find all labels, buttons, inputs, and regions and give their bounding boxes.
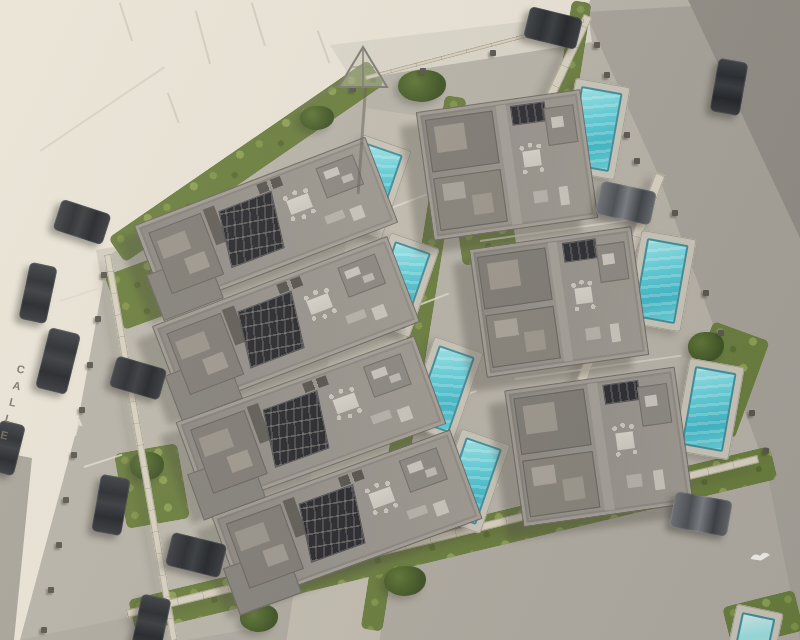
wall-post [718, 330, 724, 336]
rooftop-dining-set [569, 277, 598, 316]
roof-northwest-rooms [477, 247, 552, 310]
solar-panels [237, 291, 304, 368]
roof-southwest-rooms [522, 451, 601, 517]
tree [300, 106, 334, 130]
wall-post [56, 542, 62, 548]
wall-post [79, 407, 85, 413]
rooftop-lounge [581, 316, 627, 352]
wall-post [71, 452, 77, 458]
roof-southwest-rooms [433, 168, 509, 231]
rooftop-dining-set [360, 477, 402, 520]
solar-panels [562, 239, 598, 263]
tree [398, 70, 446, 102]
wall-post [490, 50, 496, 56]
pylon-tower-icon [336, 44, 390, 90]
wall-post [594, 42, 600, 48]
wall-post [634, 158, 640, 164]
wall-post [763, 448, 769, 454]
solar-panels [298, 484, 365, 563]
rooftop-lounge [366, 395, 422, 436]
rooftop-dining-set [609, 420, 640, 461]
solar-panels [510, 102, 547, 126]
wall-post [749, 410, 755, 416]
rooftop-pergola [337, 254, 386, 299]
rooftop-lounge [623, 462, 671, 500]
rooftop-lounge [402, 490, 458, 532]
pool-water [733, 612, 776, 640]
rooftop-dining-set [517, 139, 546, 178]
rooftop-dining-set [324, 382, 366, 424]
aerial-render: CALLE [0, 0, 800, 640]
solar-panels [218, 191, 284, 268]
wall-post [703, 290, 709, 296]
rooftop-pergola [637, 382, 673, 427]
rooftop-pergola [363, 353, 412, 398]
wall-post [87, 362, 93, 368]
rooftop-lounge [341, 295, 397, 336]
roof-southwest-rooms [486, 305, 561, 368]
wall-post [420, 68, 426, 74]
wall-post [95, 316, 101, 322]
wall-post [48, 587, 54, 593]
wall-post [624, 132, 630, 138]
car [91, 474, 131, 536]
rooftop-pergola [595, 241, 629, 283]
roof-northwest-rooms [513, 389, 592, 455]
street-arrow-marking [74, 420, 80, 436]
villa-R2 [469, 226, 649, 378]
rooftop-pergola [399, 447, 448, 492]
wall-post [63, 497, 69, 503]
car [595, 181, 657, 226]
rooftop-dining-set [279, 184, 320, 226]
solar-panels [262, 390, 329, 468]
rooftop-dining-set [299, 283, 341, 325]
wall-post [101, 272, 107, 278]
pool-water [681, 366, 736, 452]
villa-R1 [416, 89, 598, 241]
rooftop-pergola [544, 104, 579, 146]
solar-panels [602, 380, 640, 405]
villa-R3 [504, 367, 694, 528]
rooftop-lounge [530, 179, 576, 215]
roof-northwest-rooms [424, 110, 500, 173]
wall-post [672, 210, 678, 216]
rooftop-lounge [320, 195, 375, 236]
wall-post [41, 627, 47, 633]
wall-post [604, 72, 610, 78]
